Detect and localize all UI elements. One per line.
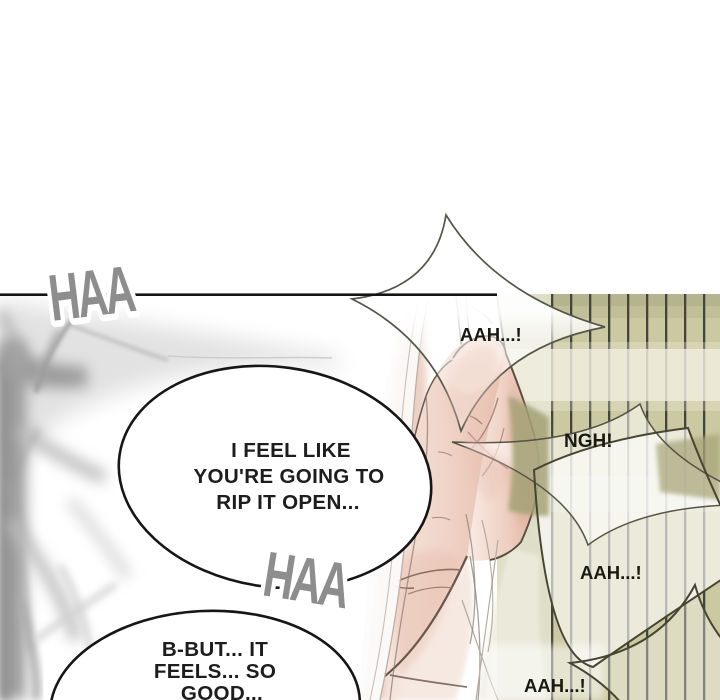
svg-text:RIP IT OPEN...: RIP IT OPEN...	[216, 491, 359, 514]
svg-text:AAH...!: AAH...!	[460, 324, 522, 345]
svg-text:YOU'RE GOING TO: YOU'RE GOING TO	[194, 465, 385, 488]
svg-text:NGH!: NGH!	[564, 431, 613, 452]
svg-text:FEELS... SO: FEELS... SO	[154, 660, 276, 683]
svg-text:B-BUT... IT: B-BUT... IT	[162, 638, 268, 661]
svg-text:GOOD...: GOOD...	[181, 682, 263, 700]
svg-text:AAH...!: AAH...!	[524, 675, 586, 696]
svg-text:AAH...!: AAH...!	[580, 562, 642, 583]
svg-text:HAA: HAA	[259, 539, 354, 622]
svg-text:HAA: HAA	[45, 251, 139, 335]
svg-text:I FEEL LIKE: I FEEL LIKE	[231, 439, 351, 462]
